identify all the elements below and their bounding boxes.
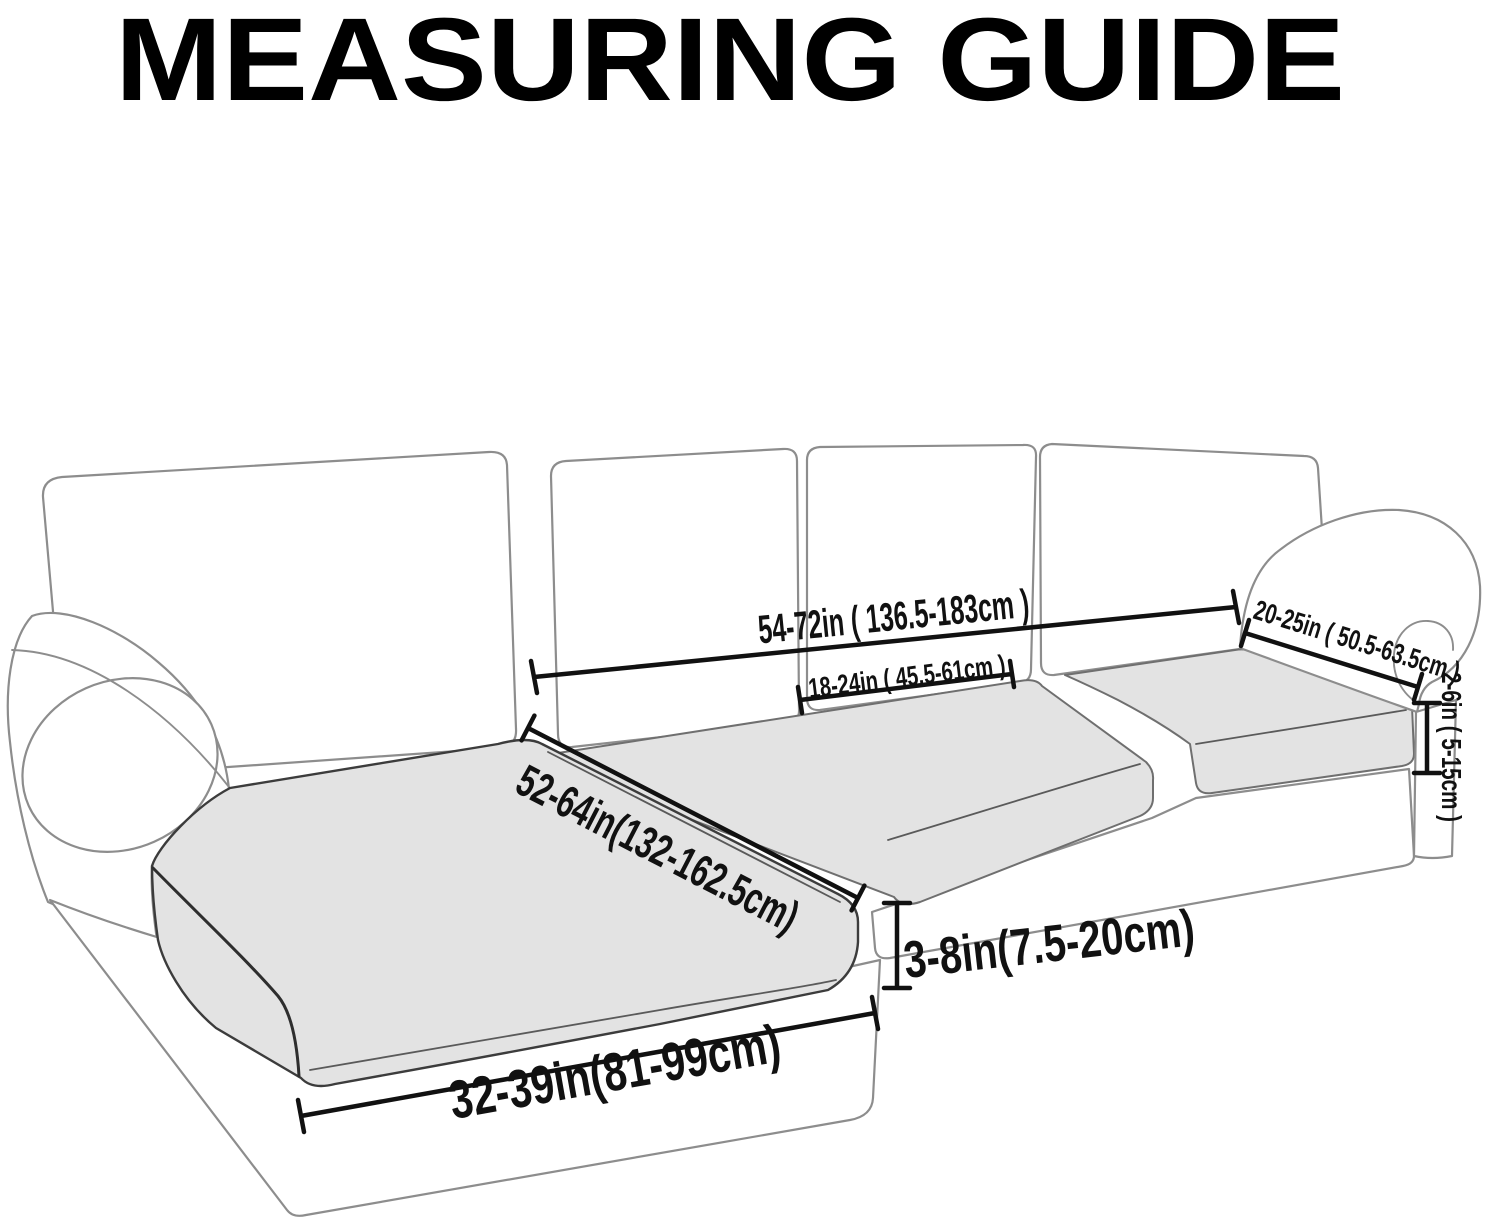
back-cushions [43,444,1322,777]
page-title: MEASURING GUIDE [115,0,1345,126]
back-cushion-2 [551,449,799,747]
measuring-guide-page: MEASURING GUIDE 54-72in ( 136. [0,0,1500,1228]
sofa-measuring-diagram: MEASURING GUIDE 54-72in ( 136. [0,0,1500,1228]
measure-label-arm-to-seat-gap: 2-6in ( 5-15cm ) [1436,672,1467,822]
